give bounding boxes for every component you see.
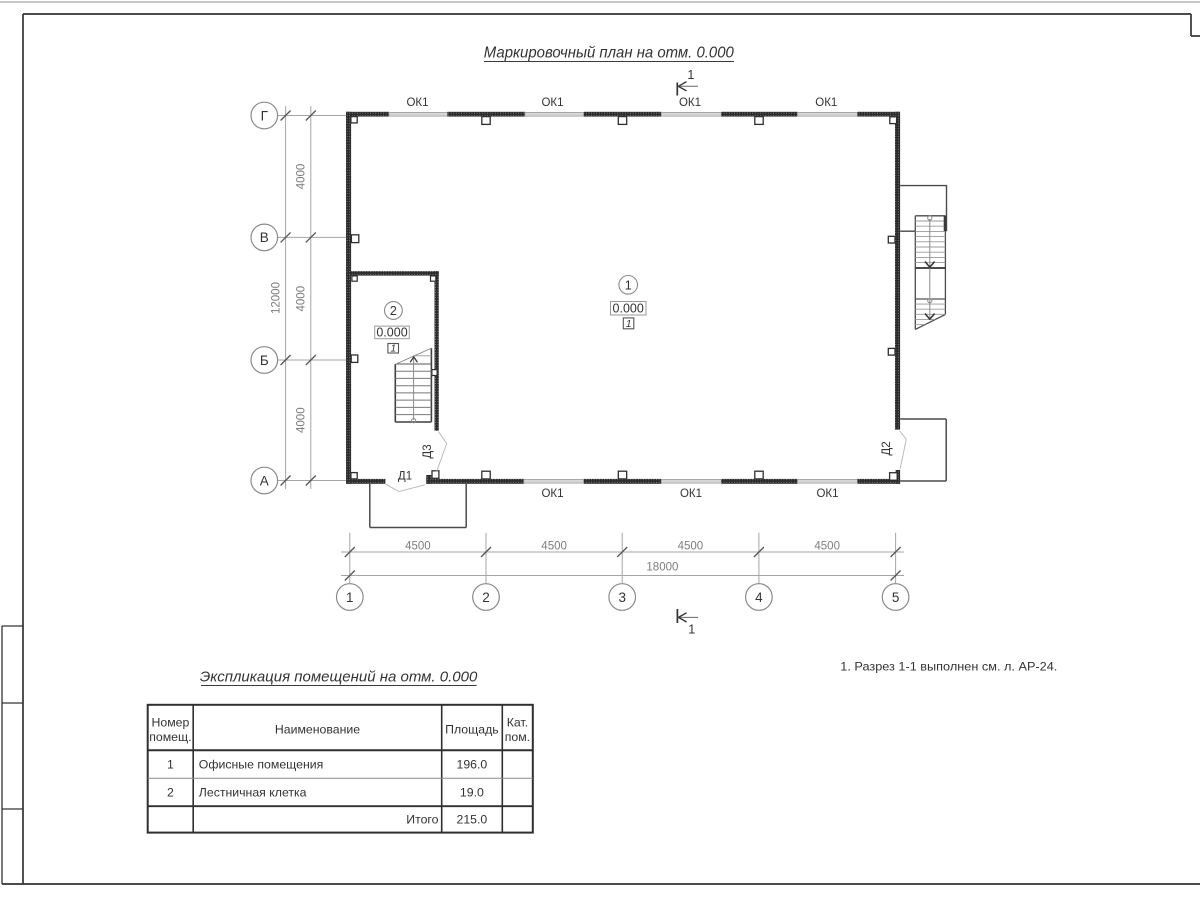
- svg-text:2: 2: [390, 304, 397, 318]
- svg-text:1. Разрез 1-1 выполнен см. л.: 1. Разрез 1-1 выполнен см. л. АР-24.: [840, 660, 1057, 674]
- svg-text:0.000: 0.000: [376, 326, 407, 340]
- svg-text:Д3: Д3: [422, 444, 434, 458]
- svg-text:4000: 4000: [296, 407, 308, 433]
- svg-text:215.0: 215.0: [457, 813, 488, 827]
- svg-text:4500: 4500: [541, 540, 567, 552]
- svg-text:4000: 4000: [296, 286, 308, 312]
- svg-text:А: А: [260, 473, 269, 488]
- svg-text:ОК1: ОК1: [541, 97, 563, 109]
- svg-text:ОК1: ОК1: [541, 488, 563, 500]
- svg-text:Итого: Итого: [406, 813, 438, 827]
- svg-text:Лестничная клетка: Лестничная клетка: [199, 786, 307, 800]
- svg-text:ОК1: ОК1: [815, 97, 837, 109]
- svg-text:Маркировочный план на отм. 0.0: Маркировочный план на отм. 0.000: [484, 45, 734, 62]
- svg-text:1: 1: [346, 590, 354, 605]
- svg-text:ОК1: ОК1: [679, 97, 701, 109]
- svg-text:5: 5: [892, 590, 900, 605]
- svg-text:2: 2: [482, 590, 490, 605]
- svg-text:1: 1: [626, 319, 632, 330]
- svg-text:1: 1: [167, 758, 174, 772]
- svg-text:помещ.: помещ.: [149, 730, 191, 744]
- svg-text:4500: 4500: [814, 540, 840, 552]
- svg-text:1: 1: [688, 623, 695, 637]
- svg-text:2: 2: [167, 786, 174, 800]
- svg-text:Г: Г: [261, 108, 269, 123]
- svg-text:ОК1: ОК1: [680, 488, 702, 500]
- svg-text:4000: 4000: [296, 164, 308, 190]
- svg-text:Номер: Номер: [151, 716, 189, 730]
- svg-text:пом.: пом.: [505, 730, 530, 744]
- svg-text:3: 3: [618, 590, 626, 605]
- svg-text:1: 1: [687, 68, 694, 82]
- svg-text:18000: 18000: [646, 562, 678, 574]
- svg-text:Д2: Д2: [881, 441, 893, 455]
- svg-text:ОК1: ОК1: [816, 488, 838, 500]
- svg-text:1: 1: [391, 344, 397, 355]
- svg-text:19.0: 19.0: [460, 786, 484, 800]
- svg-text:Д1: Д1: [398, 471, 412, 483]
- svg-text:ОК1: ОК1: [406, 97, 428, 109]
- svg-text:Наименование: Наименование: [275, 723, 360, 737]
- svg-text:Б: Б: [260, 353, 269, 368]
- svg-text:Кат.: Кат.: [507, 716, 528, 730]
- svg-text:Офисные помещения: Офисные помещения: [199, 758, 324, 772]
- svg-text:1: 1: [625, 278, 632, 292]
- svg-text:В: В: [260, 230, 269, 245]
- svg-text:Площадь: Площадь: [445, 723, 499, 737]
- svg-text:4500: 4500: [678, 540, 704, 552]
- svg-text:0.000: 0.000: [613, 302, 644, 316]
- svg-text:196.0: 196.0: [457, 758, 488, 772]
- svg-text:4: 4: [755, 590, 763, 605]
- svg-text:12000: 12000: [271, 282, 283, 314]
- svg-text:4500: 4500: [405, 540, 431, 552]
- svg-text:Экспликация помещений на отм.: Экспликация помещений на отм. 0.000: [200, 669, 478, 686]
